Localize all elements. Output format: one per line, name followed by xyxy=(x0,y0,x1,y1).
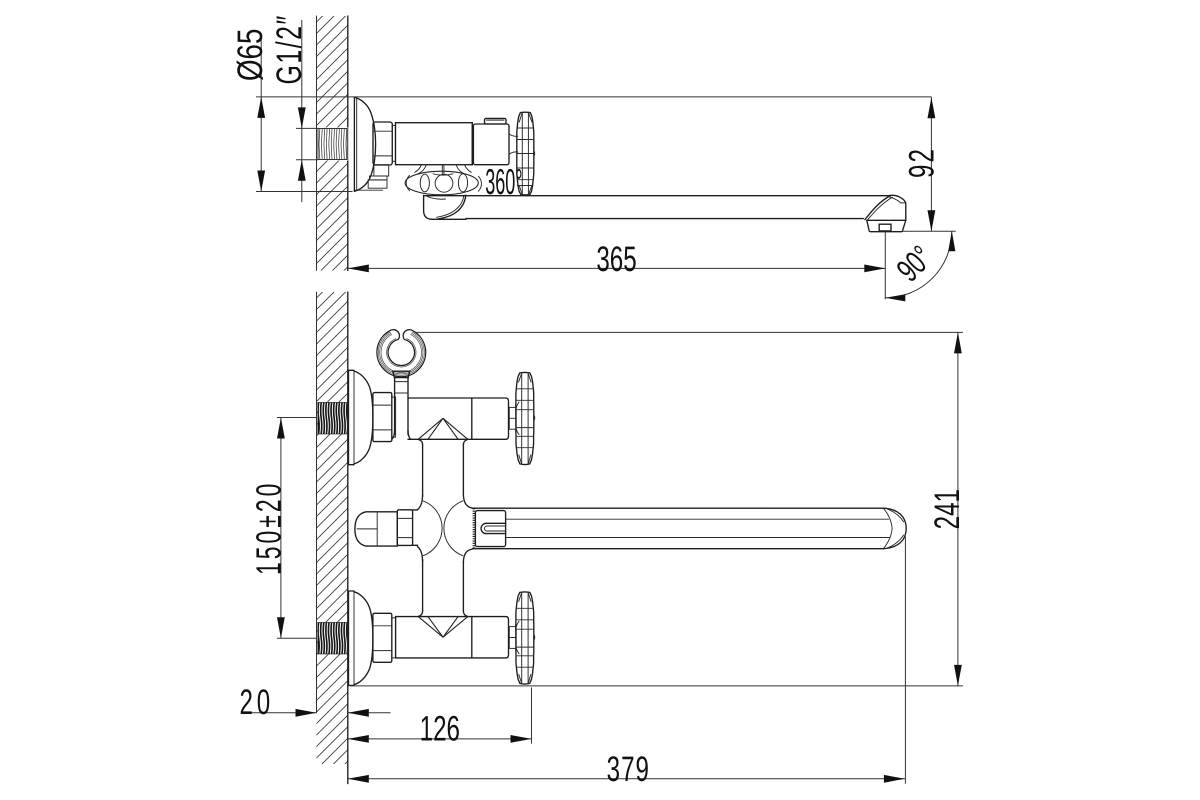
svg-text:126: 126 xyxy=(420,709,460,749)
svg-text:365: 365 xyxy=(596,239,636,279)
svg-text:241: 241 xyxy=(927,489,967,529)
svg-text:Ø65: Ø65 xyxy=(230,29,270,81)
svg-text:379: 379 xyxy=(607,749,650,789)
svg-text:G1/2″: G1/2″ xyxy=(269,14,309,84)
svg-text:150±20: 150±20 xyxy=(249,481,288,575)
svg-text:92: 92 xyxy=(902,147,942,178)
svg-text:20: 20 xyxy=(240,682,274,722)
